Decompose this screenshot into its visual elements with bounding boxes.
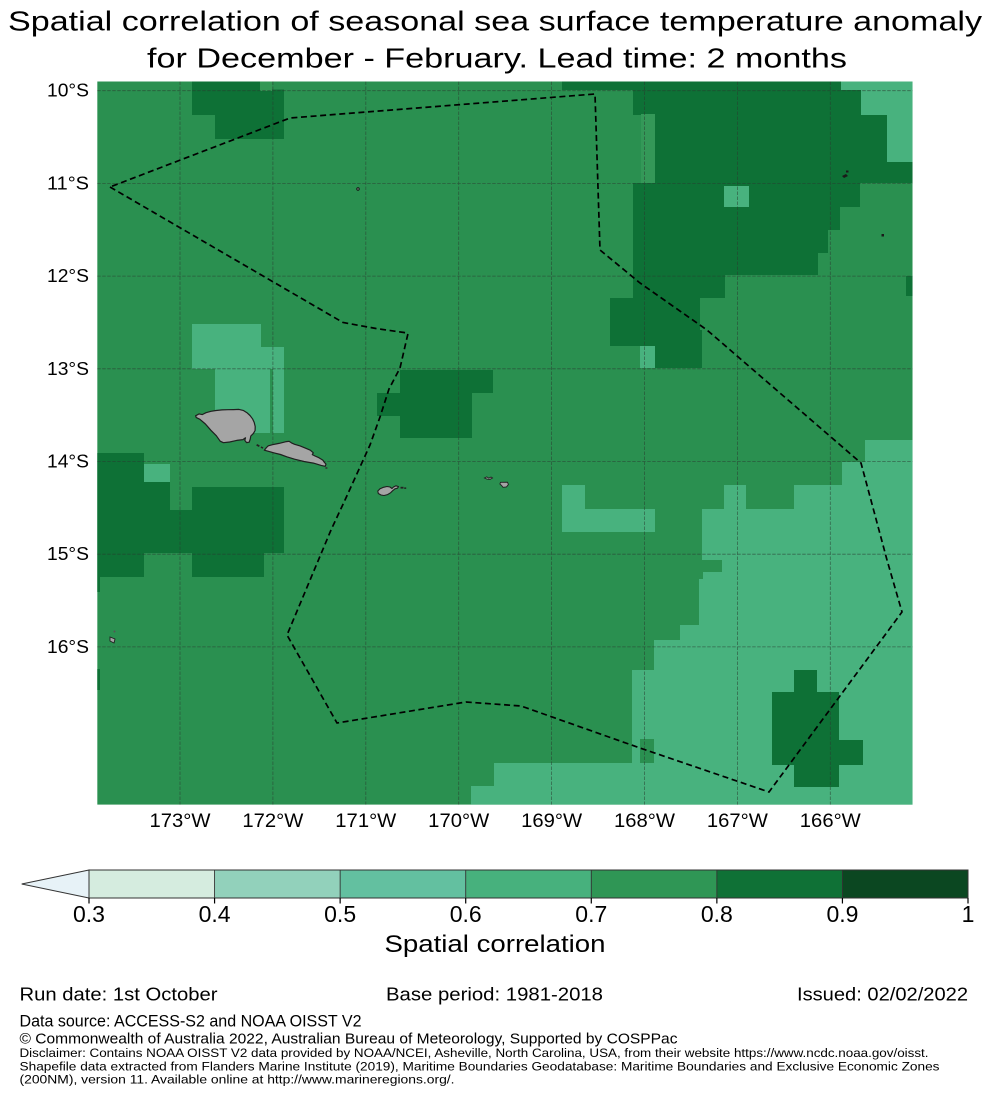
svg-text:0.6: 0.6: [450, 901, 482, 927]
svg-text:13°S: 13°S: [47, 358, 89, 379]
svg-text:173°W: 173°W: [150, 810, 212, 832]
svg-text:169°W: 169°W: [521, 810, 583, 832]
svg-text:12°S: 12°S: [47, 265, 89, 286]
svg-text:Run date: 1st October: Run date: 1st October: [20, 985, 218, 1005]
svg-text:for December - February. Lead: for December - February. Lead time: 2 mo…: [147, 43, 847, 74]
svg-text:Data source: ACCESS-S2 and NOA: Data source: ACCESS-S2 and NOAA OISST V2: [20, 1013, 362, 1031]
svg-text:14°S: 14°S: [47, 451, 89, 472]
svg-text:11°S: 11°S: [47, 172, 89, 193]
svg-text:Spatial correlation of seasona: Spatial correlation of seasonal sea surf…: [8, 6, 982, 37]
svg-text:Base period: 1981-2018: Base period: 1981-2018: [386, 985, 603, 1005]
svg-text:Disclaimer: Contains NOAA OISS: Disclaimer: Contains NOAA OISST V2 data …: [20, 1046, 929, 1060]
svg-text:168°W: 168°W: [614, 810, 676, 832]
svg-text:Spatial correlation: Spatial correlation: [385, 931, 606, 958]
svg-text:172°W: 172°W: [242, 810, 304, 832]
svg-text:167°W: 167°W: [707, 810, 769, 832]
svg-text:15°S: 15°S: [47, 543, 89, 564]
svg-text:171°W: 171°W: [335, 810, 397, 832]
svg-text:0.3: 0.3: [73, 901, 105, 927]
svg-text:166°W: 166°W: [800, 810, 862, 832]
svg-text:16°S: 16°S: [47, 636, 89, 657]
svg-text:Issued: 02/02/2022: Issued: 02/02/2022: [797, 985, 968, 1005]
svg-text:1: 1: [962, 901, 975, 927]
svg-text:170°W: 170°W: [428, 810, 490, 832]
svg-text:Shapefile data extracted from: Shapefile data extracted from Flanders M…: [20, 1059, 940, 1073]
svg-text:0.5: 0.5: [324, 901, 356, 927]
svg-text:10°S: 10°S: [47, 80, 89, 101]
svg-text:0.4: 0.4: [199, 901, 231, 927]
svg-text:(200NM), version 11. Available: (200NM), version 11. Available online at…: [20, 1072, 455, 1086]
svg-text:0.8: 0.8: [701, 901, 733, 927]
svg-text:0.7: 0.7: [575, 901, 607, 927]
svg-text:0.9: 0.9: [826, 901, 858, 927]
